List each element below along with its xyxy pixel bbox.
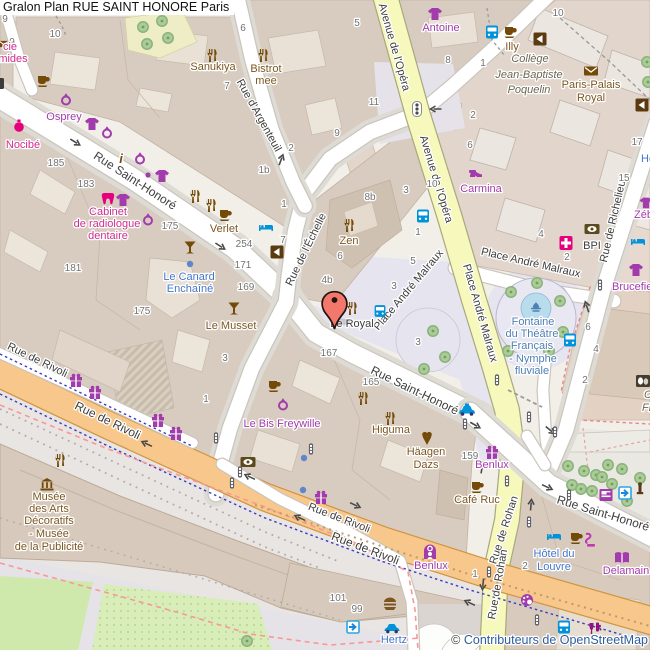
svg-text:Musée: Musée xyxy=(32,491,65,503)
svg-text:2: 2 xyxy=(288,143,294,154)
svg-text:2: 2 xyxy=(522,561,528,572)
svg-text:de radiologue: de radiologue xyxy=(74,218,141,230)
svg-text:Royal: Royal xyxy=(577,92,605,104)
svg-text:Gralon Plan RUE SAINT HONORE P: Gralon Plan RUE SAINT HONORE Paris xyxy=(3,0,229,14)
svg-text:Zen: Zen xyxy=(340,235,359,247)
svg-text:7: 7 xyxy=(280,235,286,246)
svg-text:Osprey: Osprey xyxy=(46,111,82,123)
svg-text:175: 175 xyxy=(162,221,179,232)
svg-text:9: 9 xyxy=(2,14,8,25)
svg-text:6: 6 xyxy=(467,140,473,151)
svg-text:15: 15 xyxy=(618,173,630,184)
svg-text:Français: Français xyxy=(511,340,554,352)
svg-text:8b: 8b xyxy=(364,192,376,203)
svg-text:Benlux: Benlux xyxy=(414,560,448,572)
svg-text:1: 1 xyxy=(415,227,421,238)
svg-text:183: 183 xyxy=(78,179,95,190)
svg-text:3: 3 xyxy=(403,185,409,196)
svg-text:Café Ruc: Café Ruc xyxy=(454,494,500,506)
svg-text:i: i xyxy=(119,151,123,166)
svg-text:6: 6 xyxy=(240,23,246,34)
svg-text:Cabinet: Cabinet xyxy=(89,206,127,218)
svg-text:- Nymphe: - Nymphe xyxy=(509,353,557,365)
svg-text:Benlux: Benlux xyxy=(475,459,509,471)
svg-text:181: 181 xyxy=(65,263,82,274)
svg-text:Antoine: Antoine xyxy=(422,22,459,34)
svg-text:2: 2 xyxy=(582,375,588,386)
svg-text:6: 6 xyxy=(337,251,343,262)
svg-text:dentaire: dentaire xyxy=(88,230,128,242)
svg-text:Franç: Franç xyxy=(642,402,650,414)
svg-text:Jean-Baptiste: Jean-Baptiste xyxy=(494,69,562,81)
svg-text:171: 171 xyxy=(235,260,252,271)
svg-text:Häagen: Häagen xyxy=(407,446,446,458)
svg-text:3: 3 xyxy=(415,337,421,348)
svg-text:Bistrot: Bistrot xyxy=(250,63,281,75)
svg-text:17: 17 xyxy=(631,137,643,148)
svg-text:Poquelin: Poquelin xyxy=(508,84,551,96)
svg-text:4: 4 xyxy=(593,344,599,355)
svg-text:9: 9 xyxy=(334,128,340,139)
svg-text:Collège: Collège xyxy=(511,53,548,65)
svg-text:Carmina: Carmina xyxy=(460,183,502,195)
svg-text:101: 101 xyxy=(330,593,347,604)
svg-text:7: 7 xyxy=(224,81,230,92)
svg-text:10: 10 xyxy=(426,179,438,190)
svg-text:© Contributeurs de OpenStreetM: © Contributeurs de OpenStreetMap xyxy=(451,633,648,647)
svg-text:11: 11 xyxy=(369,97,380,108)
svg-text:4: 4 xyxy=(538,229,544,240)
svg-text:1: 1 xyxy=(472,569,478,580)
svg-text:6: 6 xyxy=(585,322,591,333)
svg-text:Verlet: Verlet xyxy=(210,223,238,235)
svg-text:99: 99 xyxy=(351,604,363,615)
svg-text:175: 175 xyxy=(134,306,151,317)
svg-text:5: 5 xyxy=(354,18,360,29)
svg-text:165: 165 xyxy=(363,377,380,388)
svg-text:BPI: BPI xyxy=(583,240,601,252)
svg-text:Le Musset: Le Musset xyxy=(206,320,257,332)
svg-text:10: 10 xyxy=(49,29,61,40)
svg-text:2: 2 xyxy=(470,110,476,121)
svg-text:Delamain: Delamain xyxy=(603,565,649,577)
svg-text:Sanukiya: Sanukiya xyxy=(190,61,236,73)
svg-text:1: 1 xyxy=(480,58,486,69)
svg-text:Dazs: Dazs xyxy=(413,459,439,471)
svg-text:Le Canard: Le Canard xyxy=(163,271,214,283)
svg-text:2: 2 xyxy=(564,252,570,263)
svg-text:de la Publicité: de la Publicité xyxy=(15,541,84,553)
svg-text:Décoratifs: Décoratifs xyxy=(24,515,74,527)
svg-text:Brucefiel: Brucefiel xyxy=(612,281,650,293)
svg-text:Comé: Comé xyxy=(644,389,650,401)
svg-text:des Arts: des Arts xyxy=(29,503,69,515)
svg-text:4b: 4b xyxy=(321,275,333,286)
svg-text:Higuma: Higuma xyxy=(372,424,411,436)
svg-text:Illy: Illy xyxy=(505,41,519,53)
svg-text:Enchaîné: Enchaîné xyxy=(167,283,213,295)
svg-text:Hertz: Hertz xyxy=(381,634,407,646)
svg-text:1b: 1b xyxy=(258,165,270,176)
svg-text:Zéb: Zéb xyxy=(634,209,650,221)
svg-text:fluviale: fluviale xyxy=(515,365,549,377)
svg-text:Hôtel du: Hôtel du xyxy=(534,548,575,560)
svg-text:Paris-Palais: Paris-Palais xyxy=(562,79,621,91)
svg-text:8: 8 xyxy=(445,55,451,66)
svg-text:Fontaine: Fontaine xyxy=(512,316,555,328)
svg-text:3: 3 xyxy=(391,281,397,292)
svg-text:cie: cie xyxy=(3,41,17,53)
svg-text:mides: mides xyxy=(0,53,28,65)
svg-text:Louvre: Louvre xyxy=(537,561,571,573)
svg-text:Hôte: Hôte xyxy=(641,153,650,165)
svg-text:254: 254 xyxy=(236,239,253,250)
svg-text:1: 1 xyxy=(203,394,209,405)
svg-text:10: 10 xyxy=(552,8,564,19)
svg-text:167: 167 xyxy=(321,348,338,359)
svg-text:185: 185 xyxy=(48,158,65,169)
svg-text:du Théâtre: du Théâtre xyxy=(505,328,558,340)
svg-text:5: 5 xyxy=(410,256,416,267)
svg-text:Le Bis Freywille: Le Bis Freywille xyxy=(243,418,320,430)
svg-text:169: 169 xyxy=(238,282,255,293)
svg-text:Nocibé: Nocibé xyxy=(6,139,40,151)
svg-text:- Musée: - Musée xyxy=(29,528,69,540)
svg-text:3: 3 xyxy=(222,353,228,364)
svg-text:1: 1 xyxy=(281,199,287,210)
svg-text:mee: mee xyxy=(255,75,276,87)
